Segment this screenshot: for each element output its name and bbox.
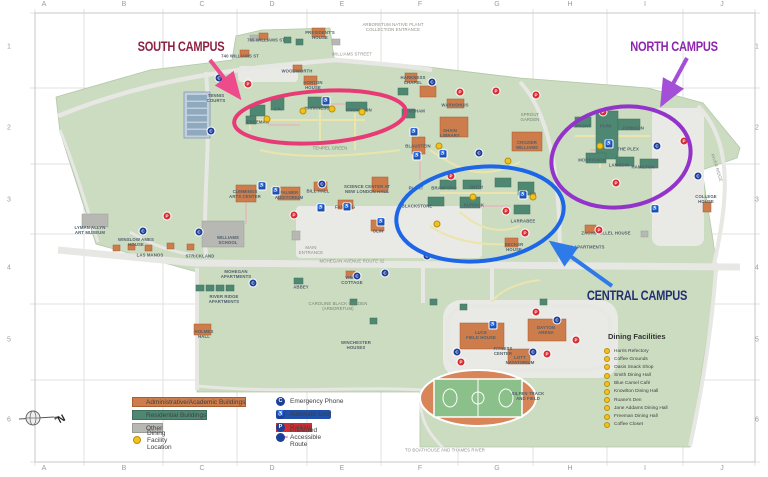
track-and-field bbox=[420, 370, 536, 426]
dining-item: Coffee Closet bbox=[604, 422, 724, 428]
tennis-courts bbox=[184, 92, 210, 138]
dining-item: Knowlton Dining Hall bbox=[604, 389, 724, 395]
dining-item: Coffee Grounds bbox=[604, 356, 724, 362]
dining-dot-icon bbox=[604, 397, 610, 403]
dining-facilities-title: Dining Facilities bbox=[608, 332, 724, 341]
compass-icon bbox=[18, 404, 78, 436]
dining-item-label: Freeman Dining Hall bbox=[614, 414, 658, 419]
compass-rose: N bbox=[18, 404, 78, 436]
dining-item-label: Coffee Closet bbox=[614, 422, 643, 427]
dining-item: Jane Addams Dining Hall bbox=[604, 405, 724, 411]
campus-map: ABCDEFGHIJ ABCDEFGHIJ 123456 123456 765 … bbox=[0, 0, 768, 477]
dining-facilities-list: Harris RefectoryCoffee GroundsOasis Snac… bbox=[604, 348, 724, 428]
dining-dot-icon bbox=[604, 364, 610, 370]
dining-dot-icon bbox=[604, 381, 610, 387]
dining-item-label: Oasis Snack Shop bbox=[614, 365, 653, 370]
dining-dot-icon bbox=[604, 414, 610, 420]
dining-item: Smith Dining Hall bbox=[604, 373, 724, 379]
dining-facilities-box: Dining Facilities Harris RefectoryCoffee… bbox=[604, 332, 724, 430]
dining-item-label: Coffee Grounds bbox=[614, 357, 648, 362]
dining-dot-icon bbox=[604, 422, 610, 428]
dining-item-label: Ruane's Den bbox=[614, 398, 642, 403]
dining-item-label: Harris Refectory bbox=[614, 349, 649, 354]
dining-dot-icon bbox=[604, 348, 610, 354]
dining-item: Blue Camel Café bbox=[604, 381, 724, 387]
dining-item-label: Blue Camel Café bbox=[614, 381, 650, 386]
dining-dot-icon bbox=[604, 389, 610, 395]
dining-item: Ruane's Den bbox=[604, 397, 724, 403]
dining-item: Oasis Snack Shop bbox=[604, 364, 724, 370]
dining-item: Freeman Dining Hall bbox=[604, 414, 724, 420]
dining-item: Harris Refectory bbox=[604, 348, 724, 354]
dining-item-label: Knowlton Dining Hall bbox=[614, 389, 658, 394]
dining-dot-icon bbox=[604, 356, 610, 362]
dining-item-label: Smith Dining Hall bbox=[614, 373, 651, 378]
dining-item-label: Jane Addams Dining Hall bbox=[614, 406, 668, 411]
dining-dot-icon bbox=[604, 405, 610, 411]
dining-dot-icon bbox=[604, 373, 610, 379]
